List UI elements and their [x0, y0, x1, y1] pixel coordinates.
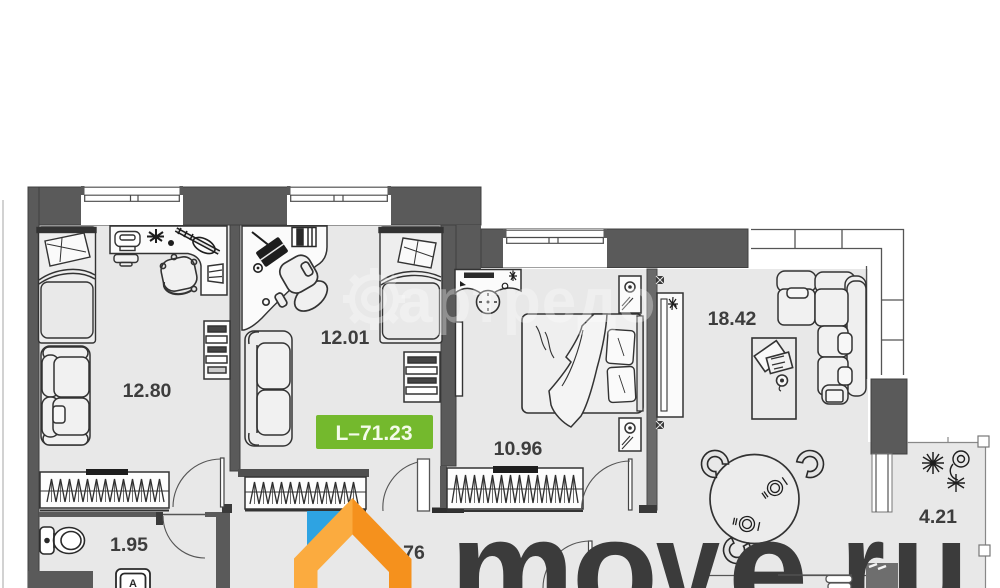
- svg-text:артредо: артредо: [398, 267, 656, 336]
- svg-text:12.01: 12.01: [321, 327, 370, 349]
- svg-text:L–71.23: L–71.23: [335, 422, 412, 445]
- svg-text:A: A: [129, 578, 137, 588]
- svg-text:v: v: [656, 490, 720, 588]
- svg-text:10.96: 10.96: [494, 438, 543, 460]
- svg-text:o: o: [572, 490, 658, 588]
- svg-text:u: u: [891, 490, 969, 588]
- svg-text:18.42: 18.42: [708, 308, 757, 330]
- svg-text:1.95: 1.95: [110, 534, 148, 556]
- svg-text:r: r: [841, 490, 885, 588]
- svg-text:12.80: 12.80: [123, 380, 172, 402]
- svg-text:e: e: [728, 490, 808, 588]
- svg-text:m: m: [450, 490, 574, 588]
